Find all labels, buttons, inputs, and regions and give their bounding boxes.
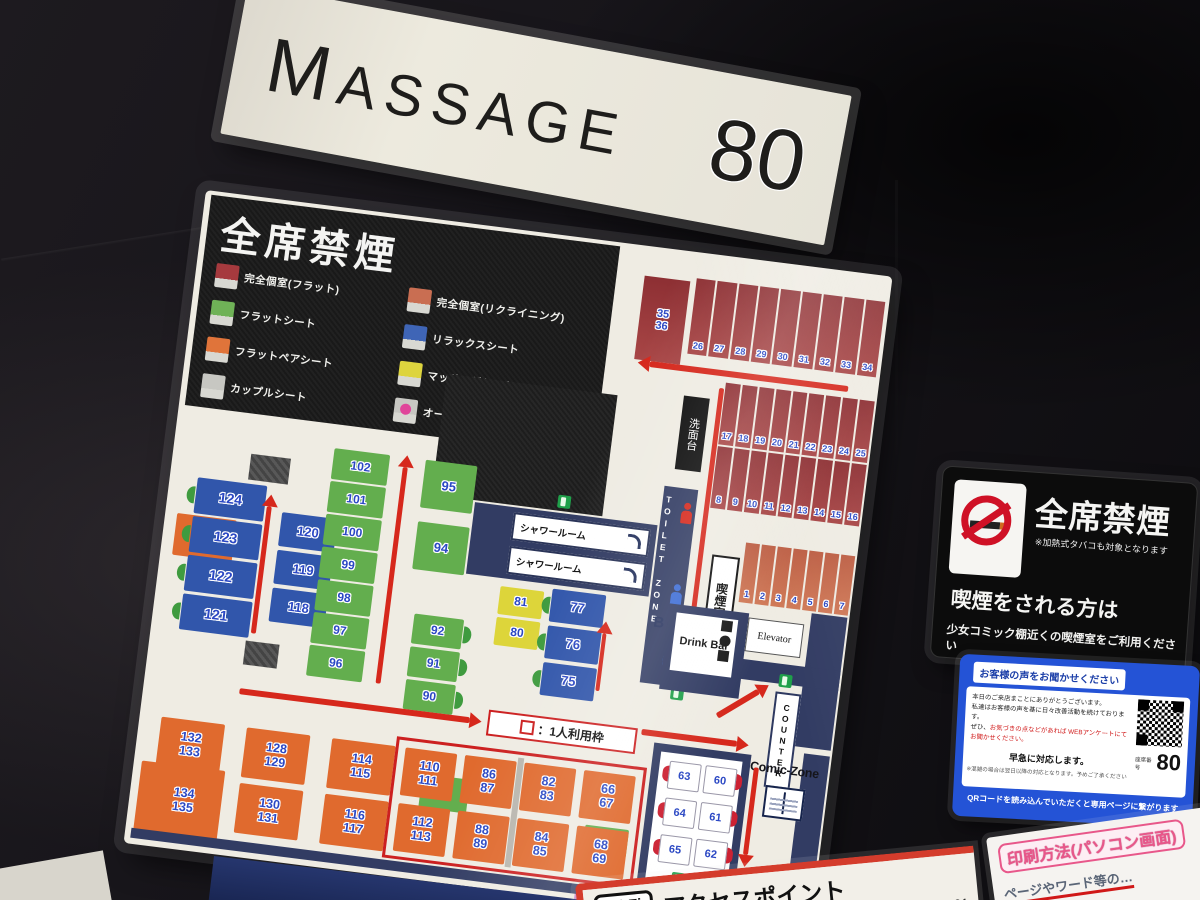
seat-number: 128 129 [241,727,311,785]
womens-restroom-icon [680,502,694,524]
shower-icon [622,567,638,583]
photo-wall: Massage 80 全席禁煙 完全個室(フラット) 完全個室(リクライニング)… [0,0,1200,900]
seat-number: 98 [314,579,373,617]
legend-label: フラットシート [239,307,317,332]
seat-number: 66 67 [578,770,636,824]
seat-number: 97 [310,612,369,650]
shower-icon [627,534,643,550]
seat-number: 130 131 [234,783,304,841]
shower-room-label: シャワールーム [515,554,582,576]
legend-label: 完全個室(リクライニング) [436,295,566,326]
seat-number: 60 [702,765,737,797]
room-row-1-7: 1234567 [739,542,856,615]
seat-number: 94 [412,521,470,575]
seat-number-display: 座席番号 80 [1135,751,1182,773]
seat-number: 99 [318,546,377,584]
feedback-panel: 本日のご来店まことにありがとうございます。 私達はお客様の声を基に日々改善活動を… [961,686,1190,798]
no-smoking-icon [949,479,1027,578]
feedback-body3-highlight: お気づきの点などがあれば WEBアンケートにてお聞かせください。 [970,724,1127,743]
seat-number-value: 80 [1156,752,1181,773]
pillar [243,641,280,669]
seat-number: 124 [193,477,267,521]
single-use-label: ：1人利用枠 [486,710,638,755]
room-row-26-34: 262728293031323334 [687,278,885,377]
shower-zone: シャワールーム シャワールーム [466,502,658,596]
qr-code [1136,699,1184,747]
seat-number: 116 117 [319,794,389,852]
single-use-frame-icon [519,720,535,736]
exit-icon [778,674,793,689]
legend-label: フラットペアシート [234,344,334,371]
legend-label: カップルシート [229,381,307,406]
wifi-logo: Wi-Fi [593,890,654,900]
seat-number: 121 [179,593,253,637]
seat-number: 114 115 [326,738,396,796]
legend-swatch [200,373,226,400]
print-howto-partial: ページやワード等の… [1003,866,1135,900]
seat-number: 101 [327,481,386,519]
flat-seats-90-92: 929190 [402,613,464,717]
seat-number: 91 [407,646,460,682]
seat-number: 132 133 [155,717,225,775]
seat-number: 122 [184,555,258,599]
seat-number: 76 [544,625,602,665]
seat-number: 84 85 [512,818,570,872]
seat-number: 88 89 [452,811,510,865]
wifi-partial-text: 001 [946,895,969,900]
seat-number-label: 座席番号 [1135,755,1155,772]
seat-number: 80 [493,617,540,650]
seat-number: 81 [497,586,544,619]
no-smoking-sign: 全席禁煙 ※加熱式タバコも対象となります 喫煙をされる方は 少女コミック棚近くの… [930,465,1199,674]
floor-map: 全席禁煙 完全個室(フラット) 完全個室(リクライニング) フラットシート リラ… [124,190,893,900]
legend-label: 完全個室(フラット) [243,271,340,298]
seat-number: 100 [323,514,382,552]
legend-swatch [205,336,231,363]
seat-number: 112 113 [393,803,451,857]
room-sign-title: Massage [260,22,635,175]
pillar [248,454,291,485]
seat-number: 65 [657,834,692,866]
wall-seam [895,180,898,480]
seat-number: 92 [411,613,464,649]
legend-swatch [393,397,419,424]
legend-label: リラックスシート [431,332,520,358]
seat-number: 86 87 [459,755,517,809]
exit-icon [557,495,572,510]
seat-number: 62 [693,839,728,871]
seat-number: 68 69 [571,826,629,880]
seat-number: 110 111 [400,747,458,801]
map-letter-b: B [652,614,665,632]
single-use-label-text: ：1人利用枠 [537,720,605,745]
elevator: Elevator [744,617,804,658]
feedback-body: 本日のご来店まことにありがとうございます。 私達はお客様の声を基に日々改善活動を… [970,693,1132,751]
feedback-header: お客様の声をお聞かせください [973,662,1126,691]
legend-swatch [402,323,428,350]
mens-restroom-icon [670,584,684,606]
seat-number: 96 [306,645,365,683]
seat-number: 102 [331,448,390,486]
room-sign-number: 80 [701,98,813,213]
partial-sign [0,850,115,900]
seat-number: 64 [662,797,697,829]
legend-swatch [209,299,235,326]
seat-number: 95 [420,460,478,514]
print-howto-title: 印刷方法(パソコン画面) [997,819,1186,875]
feedback-body3: ぜひ、 [970,723,990,731]
vending-machine-icon [717,650,729,662]
seat-number: 63 [667,761,702,793]
legend-swatch [397,360,423,387]
wifi-title: アクセスポイント [661,871,846,900]
seat-number: 82 83 [519,762,577,816]
smoker-guide-line1: 喫煙をされる方は [950,583,1120,625]
seat-number: 123 [189,516,263,560]
vending-machine-icon [721,620,733,632]
washstand-sign: 洗面台 [675,396,710,473]
book-icon [762,785,806,822]
legend-swatch [406,287,432,314]
room-35-36: 35 36 [634,276,690,365]
seat-number: 75 [539,662,597,702]
seat-number: 61 [698,802,733,834]
seat-number: 134 135 [148,772,218,830]
feedback-sign: お客様の声をお聞かせください 本日のご来店まことにありがとうございます。 私達は… [952,654,1200,828]
shower-room-label: シャワールーム [519,520,586,542]
legend-swatch [214,262,240,289]
